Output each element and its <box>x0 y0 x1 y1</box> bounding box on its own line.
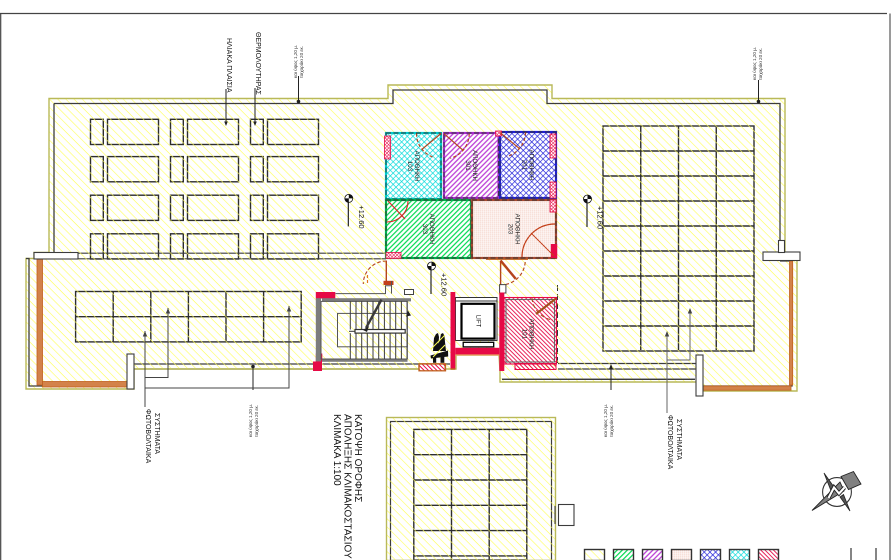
svg-text:301: 301 <box>464 160 471 171</box>
svg-text:ΑΠΟΘΗΚΗ: ΑΠΟΘΗΚΗ <box>413 151 420 182</box>
svg-text:τοιχοράκι 20 εκ.: τοιχοράκι 20 εκ. <box>757 48 763 80</box>
svg-text:203: 203 <box>507 224 514 235</box>
svg-text:ΚΛΙΜΑΚΑ 1:100: ΚΛΙΜΑΚΑ 1:100 <box>331 414 342 486</box>
svg-text:303: 303 <box>421 224 428 235</box>
svg-text:ΣΥΣΤΗΜΑΤΑ: ΣΥΣΤΗΜΑΤΑ <box>675 419 682 460</box>
svg-text:ΘΕΡΜΟΛΟΥΤΗΡΑΣ: ΘΕΡΜΟΛΟΥΤΗΡΑΣ <box>254 32 261 95</box>
svg-text:και ύψος 1,20 μ.: και ύψος 1,20 μ. <box>247 404 253 437</box>
svg-text:ΦΩΤΟΒΟΛΤΑΙΚΑ: ΦΩΤΟΒΟΛΤΑΙΚΑ <box>666 415 673 470</box>
svg-text:+12.60: +12.60 <box>596 206 605 229</box>
svg-text:και ύψος 1,20 μ.: και ύψος 1,20 μ. <box>751 47 757 80</box>
svg-text:103: 103 <box>406 161 413 172</box>
svg-text:ΗΛΙΑΚΑ ΠΛΑΙΣΙΑ: ΗΛΙΑΚΑ ΠΛΑΙΣΙΑ <box>225 38 232 93</box>
svg-text:+12.60: +12.60 <box>440 273 449 296</box>
svg-text:τοιχοράκι 20 εκ.: τοιχοράκι 20 εκ. <box>608 405 614 437</box>
svg-text:ΑΠΟΘΗΚΗ: ΑΠΟΘΗΚΗ <box>471 150 478 181</box>
svg-text:και ύψος 1,20 μ.: και ύψος 1,20 μ. <box>602 404 608 437</box>
svg-text:ΑΠΟΘΗΚΗ: ΑΠΟΘΗΚΗ <box>428 214 435 245</box>
svg-text:και ύψος 1,20 μ.: και ύψος 1,20 μ. <box>292 45 298 78</box>
svg-text:ΑΠΟΘΗΚΗ: ΑΠΟΘΗΚΗ <box>528 319 535 350</box>
svg-text:101: 101 <box>521 329 528 340</box>
svg-text:LIFT: LIFT <box>475 315 481 328</box>
svg-text:ΑΠΟΘΗΚΗ: ΑΠΟΘΗΚΗ <box>528 150 535 181</box>
svg-text:ΦΩΤΟΒΟΛΤΑΙΚΑ: ΦΩΤΟΒΟΛΤΑΙΚΑ <box>144 409 151 464</box>
svg-text:τοιχοράκι 20 εκ.: τοιχοράκι 20 εκ. <box>298 46 304 78</box>
svg-text:τοιχοράκι 20 εκ.: τοιχοράκι 20 εκ. <box>253 405 259 437</box>
svg-text:ΑΠΟΘΗΚΗ: ΑΠΟΘΗΚΗ <box>514 214 521 245</box>
svg-text:201: 201 <box>521 160 528 171</box>
svg-text:ΣΥΣΤΗΜΑΤΑ: ΣΥΣΤΗΜΑΤΑ <box>153 413 160 454</box>
svg-text:+12.60: +12.60 <box>357 205 366 228</box>
